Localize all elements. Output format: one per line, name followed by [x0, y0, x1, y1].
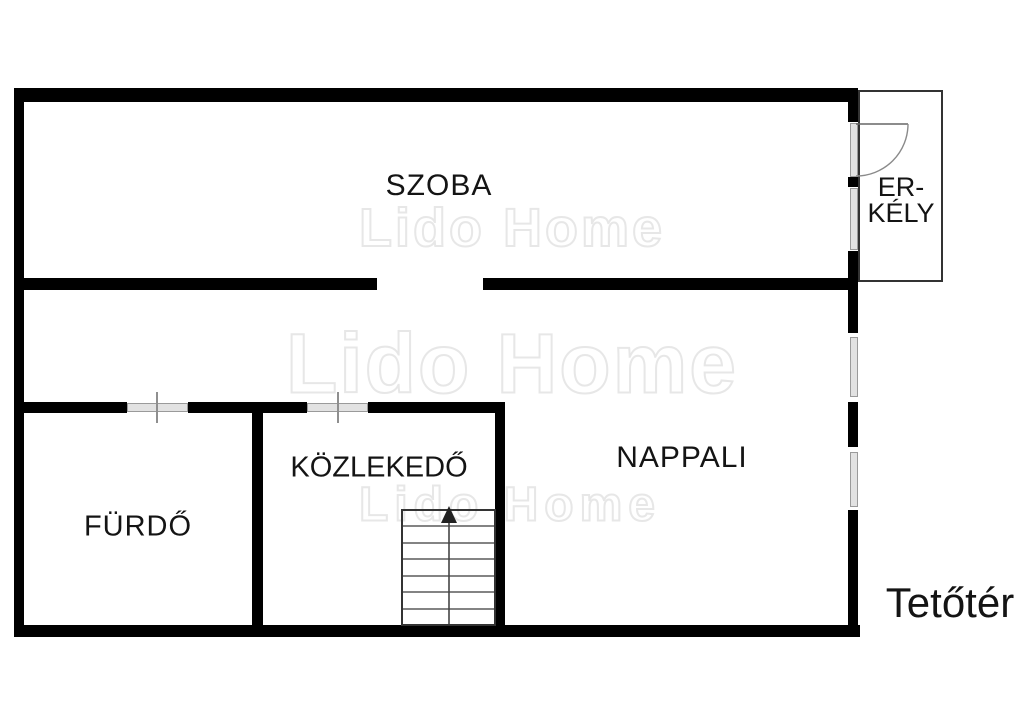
- wall-bottom: [14, 625, 860, 637]
- window-balcony-door-upper: [850, 123, 858, 177]
- watermark-row-3: Lido Home: [359, 478, 661, 533]
- watermark-row-1: Lido Home: [359, 197, 665, 259]
- window-nappali-lower: [850, 452, 858, 507]
- room-label-kozlekedo: KÖZLEKEDŐ: [290, 452, 467, 485]
- window-nappali-upper: [850, 337, 858, 397]
- window-hall-tick: [337, 392, 339, 423]
- room-label-szoba: SZOBA: [386, 169, 493, 203]
- wall-right-mid-upper: [848, 251, 858, 333]
- room-label-erkely: ER- KÉLY: [867, 174, 934, 226]
- wall-left: [14, 88, 24, 637]
- room-label-nappali: NAPPALI: [616, 441, 748, 475]
- wall-szoba-bottom-left: [14, 278, 377, 290]
- wall-hall-top-c: [368, 402, 505, 413]
- wall-furdo-divider: [252, 402, 263, 637]
- window-furdo-tick: [156, 392, 158, 423]
- wall-right-mid-lower: [848, 402, 858, 447]
- room-label-furdo: FÜRDŐ: [84, 511, 192, 544]
- floor-level-label: Tetőtér: [886, 579, 1014, 627]
- floor-plan: Lido Home Lido Home Lido Home: [0, 0, 1024, 724]
- wall-right-bottom: [848, 510, 858, 637]
- wall-right-door-jamb: [848, 177, 858, 187]
- wall-top: [14, 88, 858, 102]
- wall-right-top: [848, 88, 858, 122]
- window-balcony-door-lower: [850, 188, 858, 250]
- room-label-erkely-line2: KÉLY: [867, 200, 934, 226]
- wall-szoba-bottom-right: [483, 278, 858, 290]
- room-label-erkely-line1: ER-: [867, 174, 934, 200]
- wall-hall-right: [495, 402, 505, 637]
- wall-hall-top-b: [188, 402, 307, 413]
- wall-hall-top-a: [14, 402, 127, 413]
- watermark-row-2: Lido Home: [286, 316, 738, 413]
